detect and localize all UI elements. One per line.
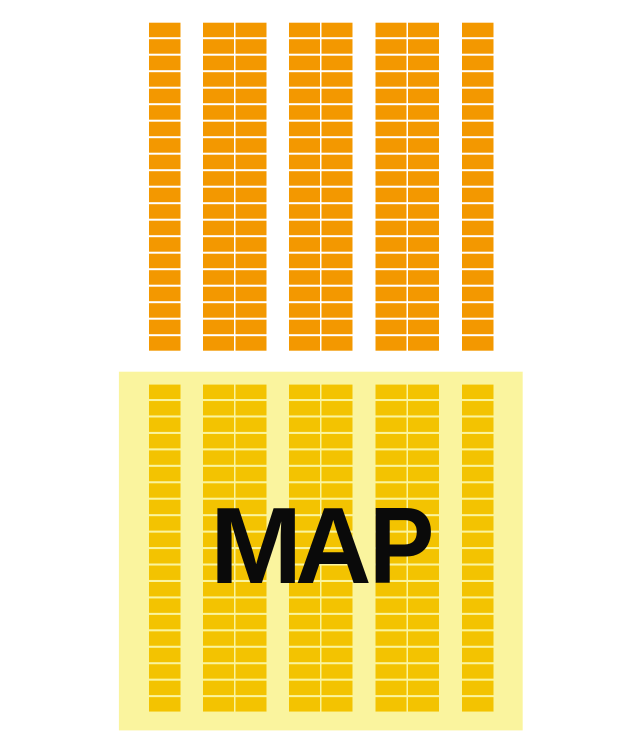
svg-text:M: M [210, 486, 302, 607]
svg-text:A: A [295, 485, 372, 606]
svg-text:P: P [369, 485, 434, 606]
